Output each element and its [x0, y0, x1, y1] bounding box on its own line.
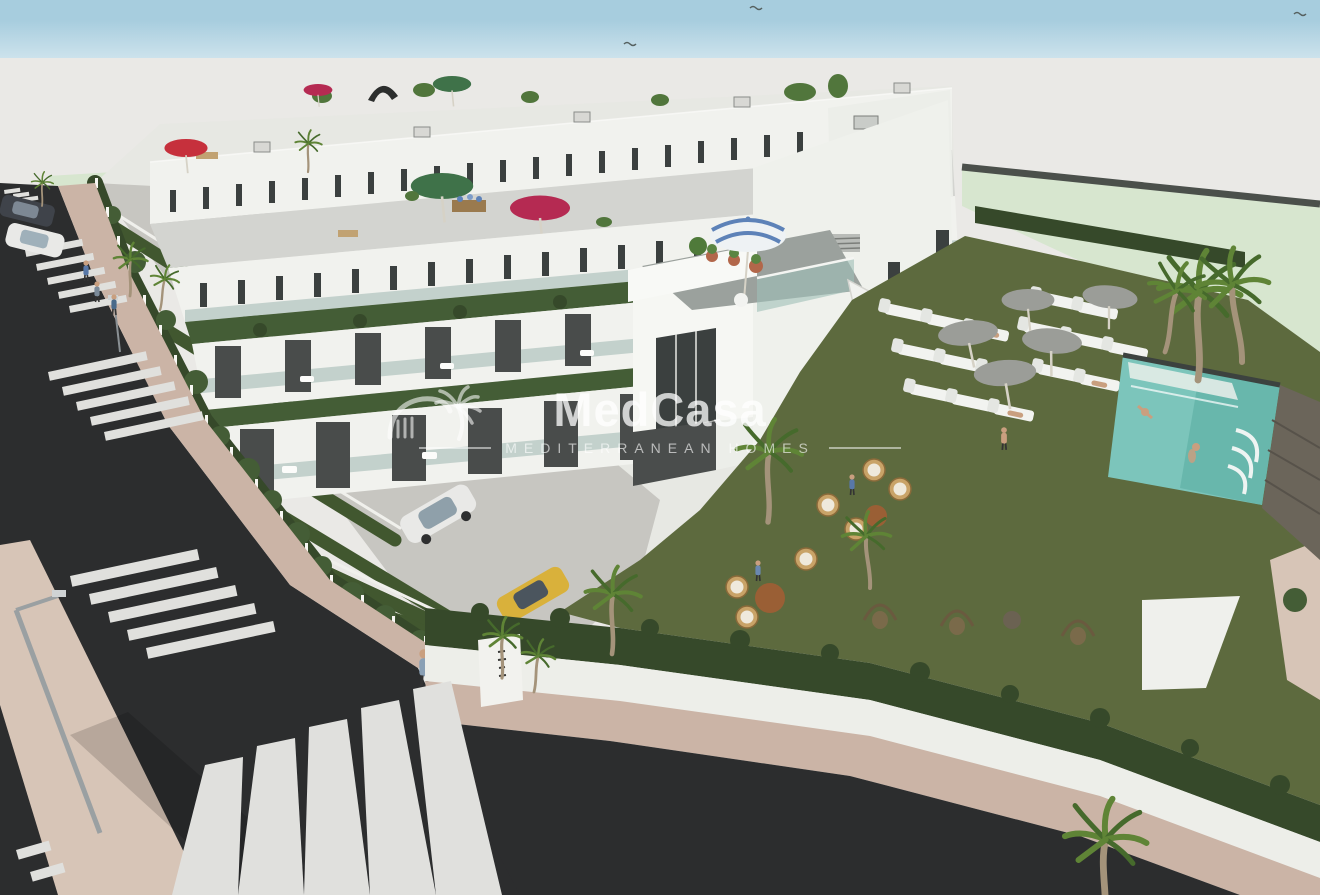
window-slot	[632, 148, 638, 170]
towel	[440, 363, 454, 369]
hedge-bump	[471, 603, 489, 621]
balcony-panel	[544, 401, 578, 467]
terrace-plant	[596, 217, 612, 227]
pot-plant	[707, 244, 717, 254]
window-slot	[731, 138, 737, 160]
rattan-chair	[726, 576, 748, 598]
balcony-panel	[355, 333, 381, 385]
window-slot	[269, 181, 275, 203]
rattan-chair	[736, 606, 758, 628]
window-slot	[580, 248, 587, 272]
roof-plant	[784, 83, 816, 101]
window-slot	[764, 135, 770, 157]
roof-plant	[413, 83, 435, 97]
roof-plant	[828, 74, 848, 98]
rattan-chair	[817, 494, 839, 516]
window-slot	[428, 262, 435, 286]
planter-flowers	[467, 194, 473, 200]
window-slot	[314, 273, 321, 297]
hedge-bump	[730, 630, 750, 650]
towel	[422, 452, 437, 459]
towel	[282, 466, 297, 473]
balcony-panel	[425, 327, 451, 379]
window-slot	[466, 259, 473, 283]
balcony-panel	[565, 314, 591, 366]
rattan-chair	[863, 459, 885, 481]
window-slot	[276, 276, 283, 300]
chimney	[414, 127, 430, 137]
hedge-bump	[1001, 685, 1019, 703]
window-slot	[500, 160, 506, 182]
window-slot	[170, 190, 176, 212]
balcony-panel	[468, 408, 502, 474]
window-slot	[504, 255, 511, 279]
round-table	[755, 583, 785, 613]
rattan-chair	[795, 548, 817, 570]
window-slot	[236, 184, 242, 206]
towel	[580, 350, 594, 356]
window-slot	[618, 245, 625, 269]
window-slot	[368, 172, 374, 194]
roof-plant	[521, 91, 539, 103]
lamp-head	[52, 590, 66, 597]
hedge-bush	[353, 314, 367, 328]
hedge-bump	[1090, 708, 1110, 728]
hedge-bump	[821, 644, 839, 662]
fire-table	[1003, 611, 1021, 629]
pot-plant	[751, 254, 761, 264]
window-slot	[797, 132, 803, 154]
window-slot	[566, 154, 572, 176]
balcony-panel	[316, 422, 350, 488]
hedge-bump	[1270, 775, 1290, 795]
chimney	[734, 97, 750, 107]
window-slot	[665, 145, 671, 167]
rattan-chair	[889, 478, 911, 500]
sky-haze	[0, 20, 1320, 60]
terrace-table	[338, 230, 358, 237]
hedge-bump	[910, 662, 930, 682]
window-slot	[656, 241, 663, 265]
towel	[300, 376, 314, 382]
glass-doors	[656, 328, 716, 432]
hedge-bush	[453, 305, 467, 319]
window-slot	[401, 169, 407, 191]
hedge-bump	[641, 619, 659, 637]
render-canvas: MedCasa MEDITERRANEAN HOMES	[0, 0, 1320, 895]
hedge-bush	[553, 295, 567, 309]
terrace-planter	[452, 200, 486, 212]
window-slot	[203, 187, 209, 209]
hedge-bump	[1181, 739, 1199, 757]
terrace-table	[734, 293, 748, 307]
balcony-panel	[495, 320, 521, 372]
chimney	[574, 112, 590, 122]
balcony-panel	[215, 346, 241, 398]
roof-plant	[651, 94, 669, 106]
terrace-plant	[689, 237, 707, 255]
planter-flowers	[476, 196, 482, 202]
window-slot	[698, 141, 704, 163]
window-slot	[542, 252, 549, 276]
window-slot	[335, 175, 341, 197]
balcony-panel	[392, 415, 426, 481]
window-slot	[599, 151, 605, 173]
chimney	[894, 83, 910, 93]
hedge-bump	[550, 608, 570, 628]
window-slot	[238, 280, 245, 304]
terrace-plant	[405, 191, 419, 201]
window-slot	[200, 283, 207, 307]
window-slot	[352, 269, 359, 293]
window-slot	[390, 266, 397, 290]
chimney	[254, 142, 270, 152]
window-slot	[302, 178, 308, 200]
scene-svg	[0, 0, 1320, 895]
planter-flowers	[457, 196, 463, 202]
window-slot	[533, 157, 539, 179]
balcony-panel	[285, 340, 311, 392]
hedge-bush	[253, 323, 267, 337]
corner-bush	[1283, 588, 1307, 612]
